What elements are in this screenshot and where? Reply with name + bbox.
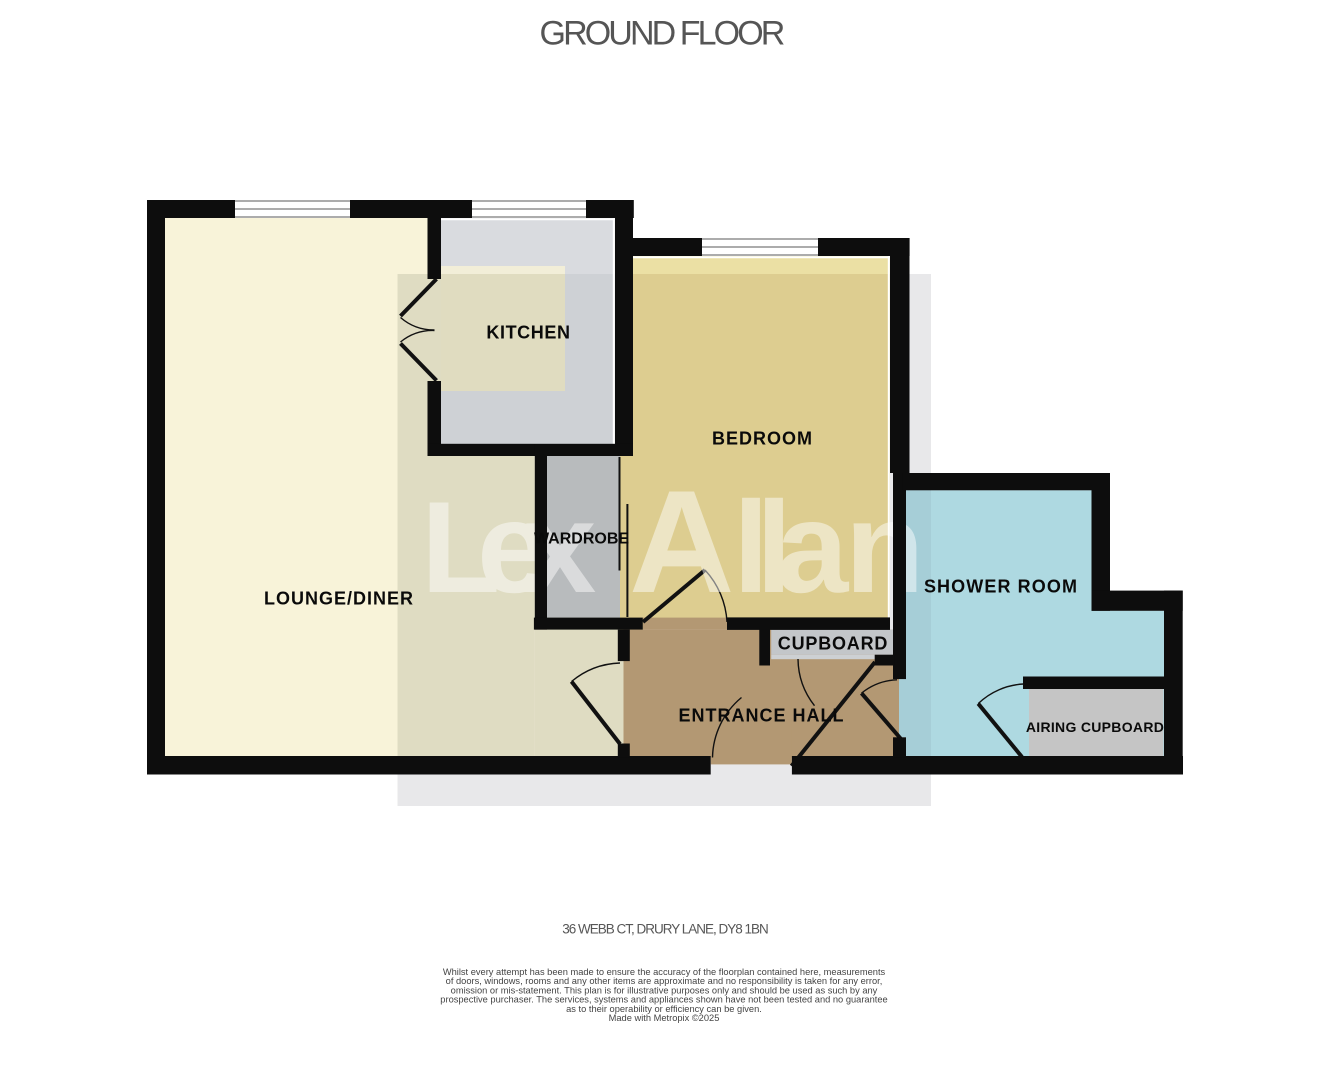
- svg-text:LOUNGE/DINER: LOUNGE/DINER: [264, 589, 414, 609]
- svg-text:SHOWER ROOM: SHOWER ROOM: [924, 577, 1078, 597]
- svg-text:AIRING CUPBOARD: AIRING CUPBOARD: [1026, 719, 1164, 735]
- svg-text:36 WEBB CT, DRURY LANE, DY8 1B: 36 WEBB CT, DRURY LANE, DY8 1BN: [562, 922, 768, 937]
- svg-text:WARDROBE: WARDROBE: [534, 531, 629, 548]
- svg-text:CUPBOARD: CUPBOARD: [778, 634, 888, 654]
- svg-text:Made with Metropix ©2025: Made with Metropix ©2025: [609, 1013, 720, 1023]
- svg-text:LexAllan: LexAllan: [421, 460, 924, 623]
- svg-text:ENTRANCE HALL: ENTRANCE HALL: [679, 706, 845, 726]
- svg-text:KITCHEN: KITCHEN: [486, 323, 570, 343]
- svg-text:GROUND FLOOR: GROUND FLOOR: [540, 15, 784, 53]
- svg-text:BEDROOM: BEDROOM: [712, 429, 813, 449]
